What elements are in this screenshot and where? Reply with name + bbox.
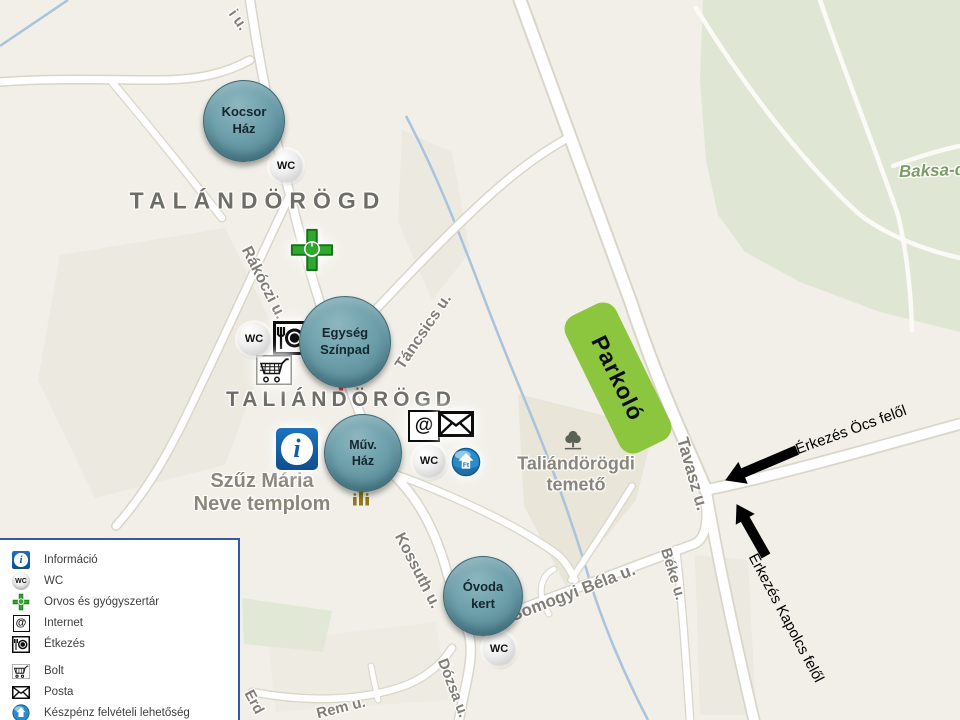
venue-kocsor-haz: KocsorHáz: [203, 80, 285, 162]
area-label-baksa: Baksa-d: [899, 160, 960, 182]
wc-badge: WC: [270, 150, 302, 182]
shop-cart-icon: [256, 355, 292, 385]
wc-badge: WC: [238, 323, 270, 355]
legend-item-wc: WC WC: [7, 571, 238, 591]
post-envelope-icon: [7, 686, 35, 699]
street-label-top-partial: i u.: [225, 6, 251, 34]
street-label-kossuth: Kossuth u.: [390, 530, 444, 612]
legend-item-posta: Posta: [7, 682, 238, 702]
legend-item-keszpenz: Készpénz felvételi lehetőség: [7, 703, 238, 720]
parking-label: Parkoló: [586, 331, 650, 425]
venue-egyseg-szinpad: EgységSzínpad: [299, 296, 391, 388]
internet-at-icon: @: [408, 410, 440, 442]
legend-item-bolt: Bolt: [7, 661, 238, 681]
street-label-dozsa: Dózsa u.: [434, 656, 472, 720]
street-label-rakoczi: Rákóczi u.: [237, 244, 289, 323]
arrival-ocs-label: Érkezés Öcs felől: [793, 402, 908, 458]
arrival-kapolcs-label: Érkezés Kapolcs felől: [745, 551, 827, 686]
legend-panel: i Információ WC WC Orvos és gyógyszertár…: [0, 538, 240, 720]
legend-item-orvos: Orvos és gyógyszertár: [7, 592, 238, 612]
shop-cart-icon: [7, 664, 35, 679]
street-label-erd-partial: Erd: [241, 687, 268, 717]
map-canvas: TALÁNDÖRÖGD TALIÁNDÖRÖGD i u. Rákóczi u.…: [0, 0, 960, 720]
venue-muvelodesi-haz: Műv.Ház: [324, 414, 402, 492]
wc-badge: WC: [483, 633, 515, 665]
wc-badge: WC: [413, 445, 445, 477]
info-icon: i: [7, 551, 35, 569]
street-label-tancsics: Táncsics u.: [392, 291, 456, 373]
internet-at-icon: @: [7, 615, 35, 632]
pharmacy-cross-icon: [7, 593, 35, 611]
wc-icon: WC: [7, 572, 35, 590]
legend-item-etkezes: Étkezés: [7, 634, 238, 654]
atm-globe-icon: [7, 704, 35, 720]
info-icon: i: [276, 428, 318, 470]
legend-item-internet: @ Internet: [7, 613, 238, 633]
venue-ovoda-kert: Óvodakert: [443, 556, 523, 636]
church-label: Szűz Mária Neve templom: [194, 470, 331, 516]
town-label-south: TALIÁNDÖRÖGD: [226, 388, 456, 412]
cemetery-tree-icon: [561, 430, 585, 450]
atm-globe-icon: Ft: [451, 447, 481, 477]
food-icon: [7, 636, 35, 653]
info-icon-disc: i: [281, 433, 312, 464]
street-label-rem: Rem u.: [315, 694, 368, 720]
svg-text:Ft: Ft: [463, 462, 470, 469]
street-label-beke: Béke u.: [657, 546, 689, 602]
post-envelope-icon: [438, 411, 474, 437]
legend-item-informacio: i Információ: [7, 550, 238, 570]
pharmacy-cross-icon: [289, 227, 335, 273]
cemetery-label: Taliándörögdi temető: [517, 453, 635, 494]
town-label-north: TALÁNDÖRÖGD: [130, 188, 387, 215]
street-label-somogyi-bela: Somogyi Béla u.: [508, 560, 639, 626]
street-label-tavasz: Tavasz u.: [672, 435, 712, 513]
